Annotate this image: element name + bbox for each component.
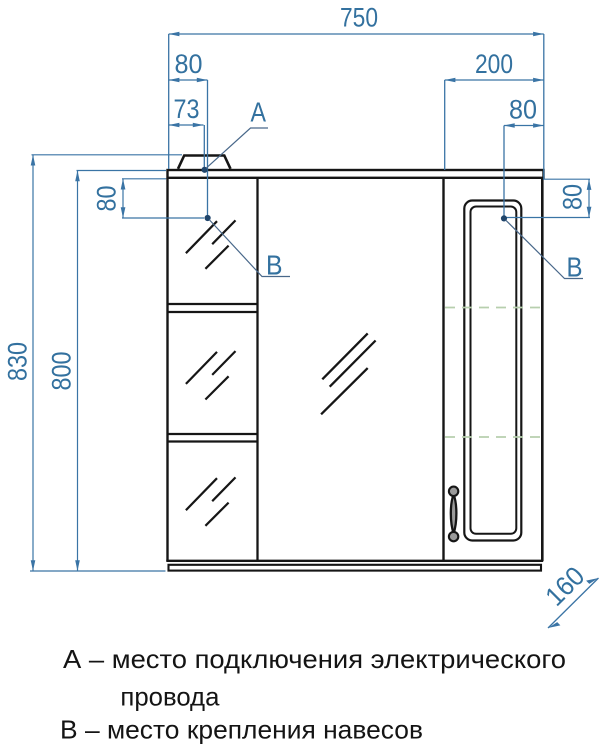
svg-text:830: 830: [3, 342, 33, 381]
svg-text:80: 80: [558, 184, 588, 210]
svg-text:80: 80: [92, 186, 122, 212]
svg-text:800: 800: [47, 352, 77, 391]
svg-text:B: B: [266, 250, 283, 281]
svg-text:80: 80: [509, 95, 537, 125]
svg-text:750: 750: [340, 3, 378, 33]
svg-text:200: 200: [475, 49, 513, 79]
svg-text:B: B: [567, 252, 583, 283]
svg-text:провода: провода: [120, 682, 220, 712]
svg-text:В – место крепления навесов: В – место крепления навесов: [60, 715, 423, 745]
svg-text:А – место подключения электрич: А – место подключения электрического: [63, 644, 566, 674]
svg-text:80: 80: [175, 49, 203, 79]
svg-text:73: 73: [174, 94, 200, 124]
svg-text:A: A: [251, 97, 267, 128]
